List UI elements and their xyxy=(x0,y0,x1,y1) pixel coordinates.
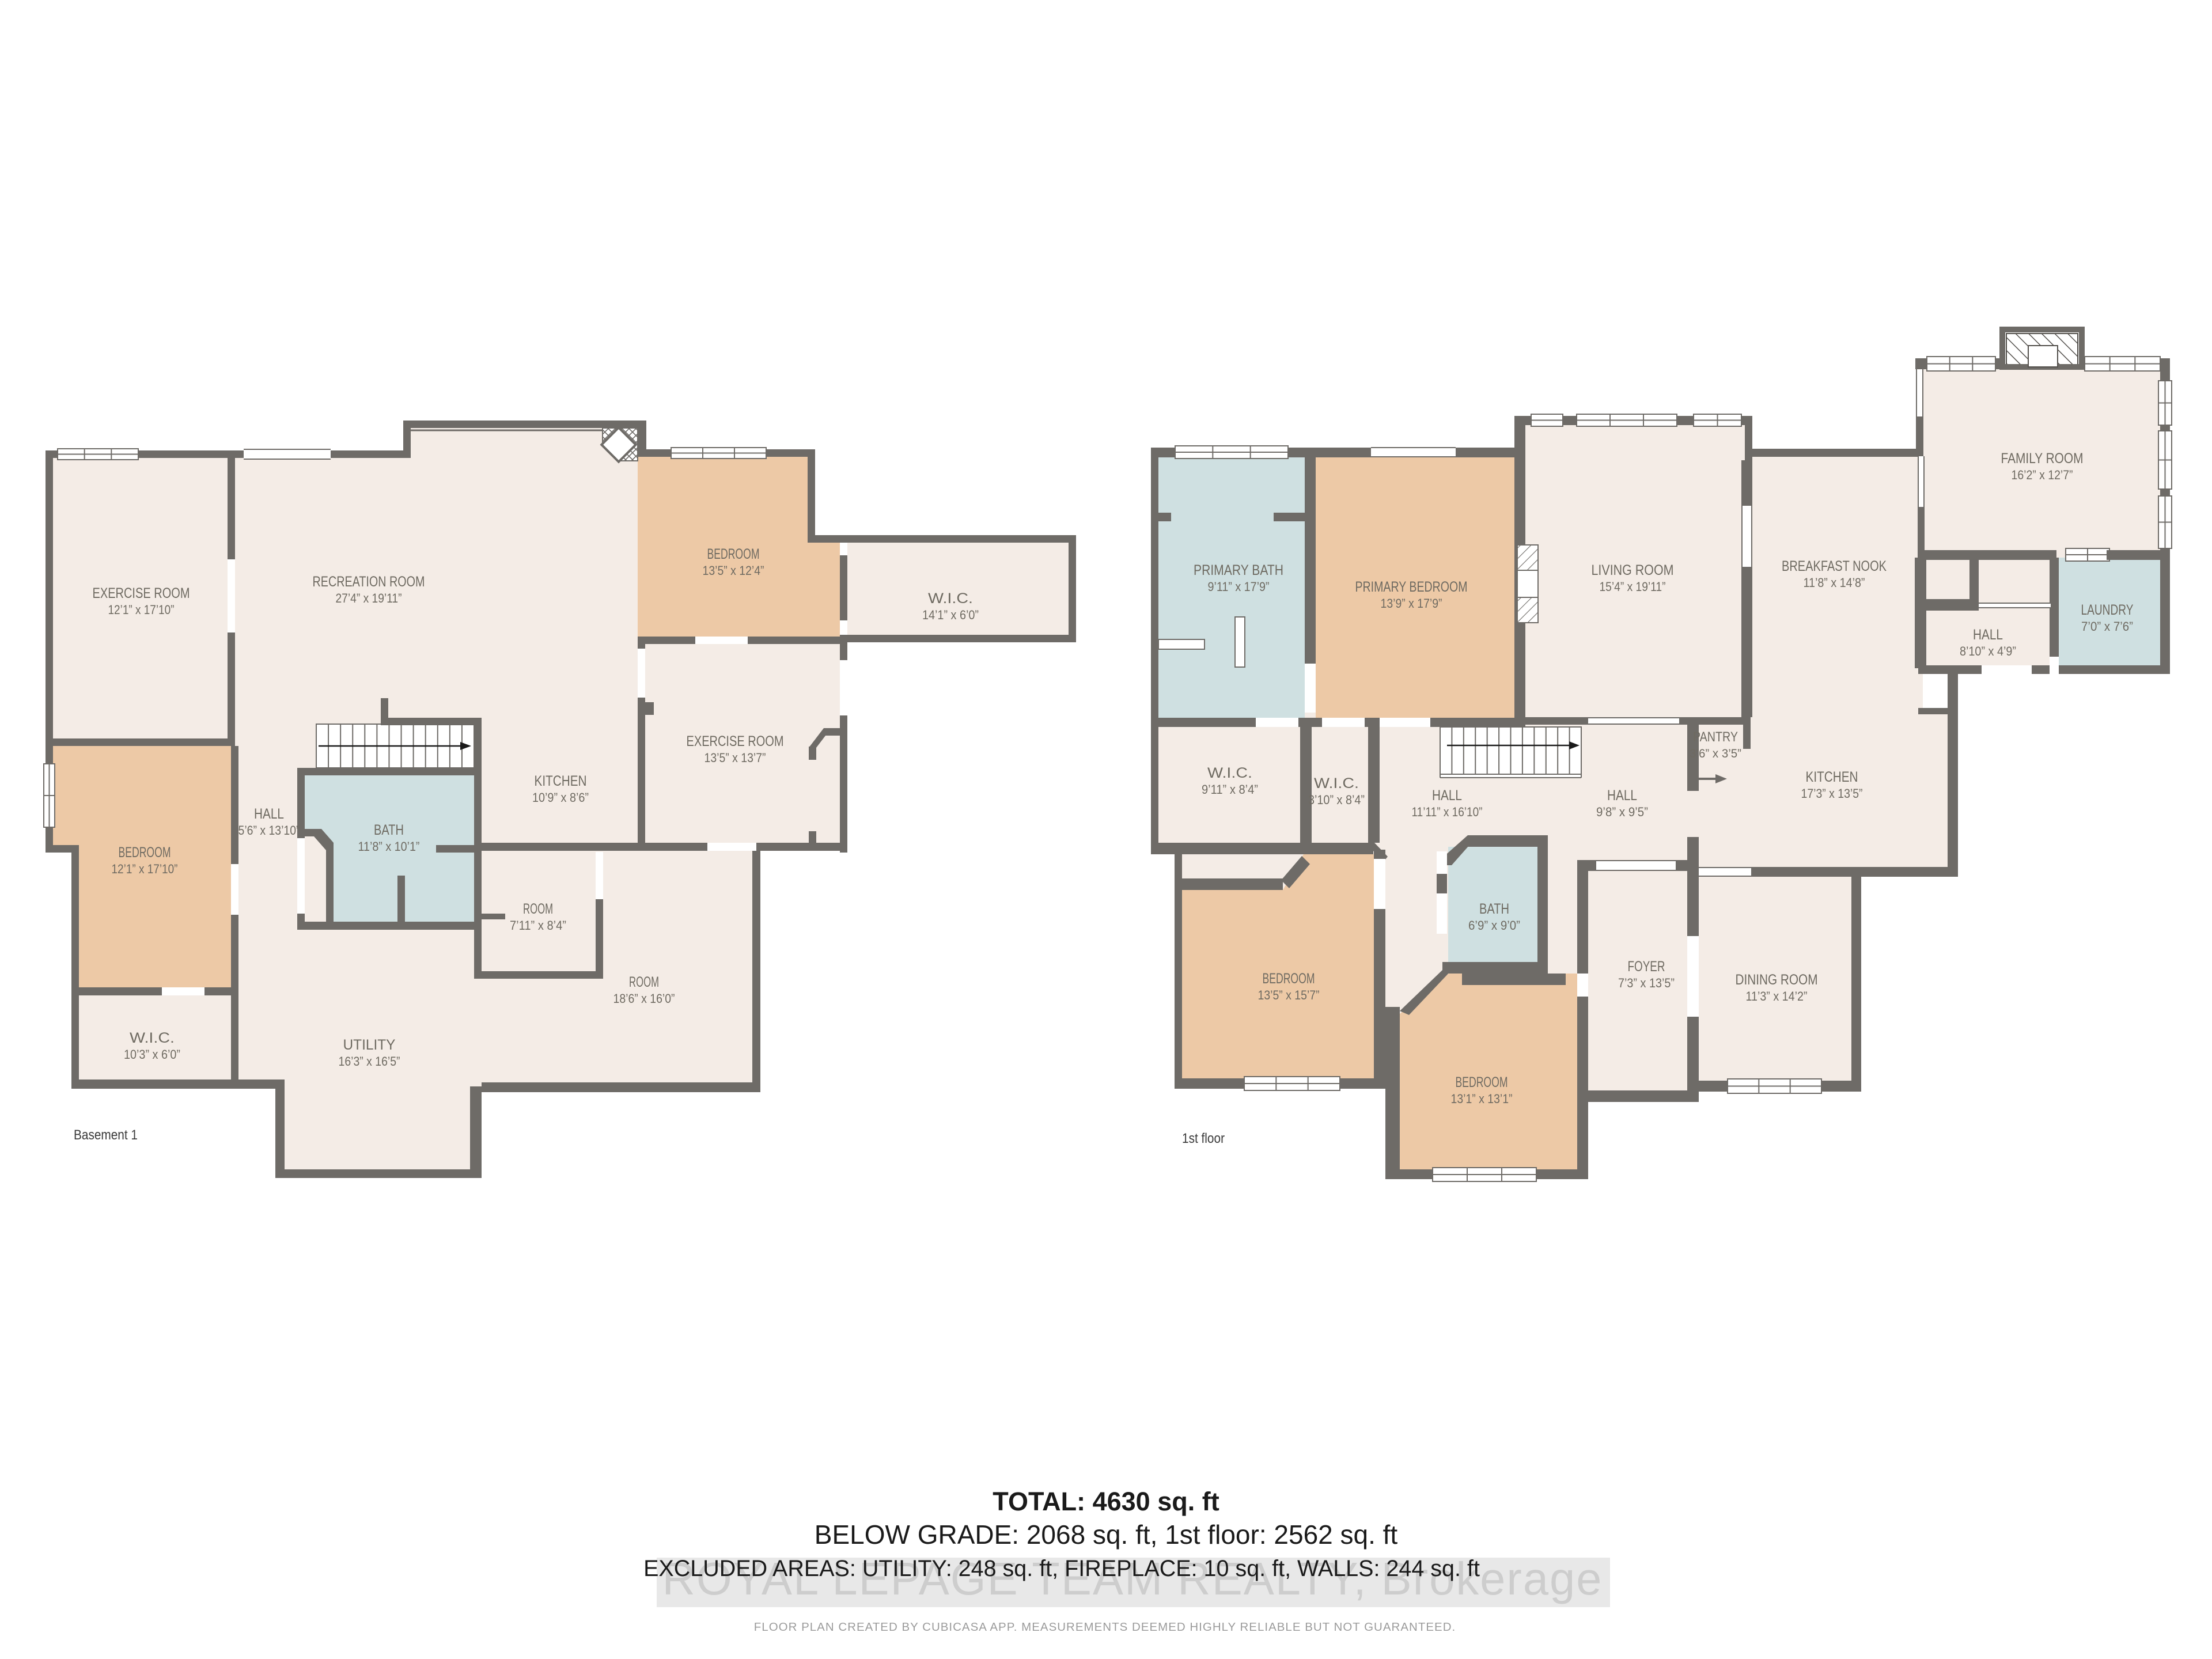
svg-text:5’6” x 13’10”: 5’6” x 13’10” xyxy=(238,823,300,838)
svg-text:BATH: BATH xyxy=(1479,901,1509,917)
svg-text:14’1” x 6’0”: 14’1” x 6’0” xyxy=(922,608,979,622)
svg-text:KITCHEN: KITCHEN xyxy=(1806,769,1858,785)
svg-text:12’1” x 17’10”: 12’1” x 17’10” xyxy=(112,862,178,876)
svg-text:3’6” x 3’5”: 3’6” x 3’5” xyxy=(1690,747,1741,760)
svg-text:11’11” x 16’10”: 11’11” x 16’10” xyxy=(1412,805,1483,819)
svg-text:LAUNDRY: LAUNDRY xyxy=(2081,602,2134,618)
svg-text:BEDROOM: BEDROOM xyxy=(119,844,171,861)
svg-text:16’2” x 12’7”: 16’2” x 12’7” xyxy=(2012,468,2073,482)
svg-text:EXCLUDED AREAS: UTILITY: 248 s: EXCLUDED AREAS: UTILITY: 248 sq. ft, FIR… xyxy=(643,1556,1480,1581)
svg-text:15’4” x 19’11”: 15’4” x 19’11” xyxy=(1600,579,1666,594)
svg-text:W.I.C.: W.I.C. xyxy=(928,590,973,607)
svg-text:BELOW GRADE: 2068 sq. ft, 1st: BELOW GRADE: 2068 sq. ft, 1st floor: 256… xyxy=(815,1520,1398,1550)
svg-text:1st floor: 1st floor xyxy=(1182,1131,1225,1146)
svg-text:10’9” x 8’6”: 10’9” x 8’6” xyxy=(532,790,589,805)
svg-text:RECREATION ROOM: RECREATION ROOM xyxy=(313,574,425,590)
svg-text:HALL: HALL xyxy=(1607,787,1637,804)
svg-text:8’10” x 4’9”: 8’10” x 4’9” xyxy=(1960,644,2016,658)
svg-text:EXERCISE ROOM: EXERCISE ROOM xyxy=(687,733,784,749)
svg-text:KITCHEN: KITCHEN xyxy=(535,773,587,789)
svg-text:BEDROOM: BEDROOM xyxy=(707,546,760,562)
svg-text:12’1” x 17’10”: 12’1” x 17’10” xyxy=(108,603,175,617)
svg-text:11’8” x 14’8”: 11’8” x 14’8” xyxy=(1804,575,1865,590)
svg-text:18’6” x 16’0”: 18’6” x 16’0” xyxy=(613,991,675,1006)
svg-text:13’1” x 13’1”: 13’1” x 13’1” xyxy=(1451,1092,1513,1106)
svg-text:W.I.C.: W.I.C. xyxy=(130,1030,175,1046)
svg-text:FLOOR PLAN CREATED BY CUBICASA: FLOOR PLAN CREATED BY CUBICASA APP. MEAS… xyxy=(754,1620,1456,1634)
svg-text:10’3” x 6’0”: 10’3” x 6’0” xyxy=(124,1047,180,1062)
svg-text:ROOM: ROOM xyxy=(523,901,553,917)
svg-text:27’4” x 19’11”: 27’4” x 19’11” xyxy=(336,591,402,605)
svg-text:7’11” x 8’4”: 7’11” x 8’4” xyxy=(510,918,566,933)
svg-text:17’3” x 13’5”: 17’3” x 13’5” xyxy=(1801,786,1863,801)
svg-text:13’9” x 17’9”: 13’9” x 17’9” xyxy=(1381,596,1442,611)
svg-text:EXERCISE ROOM: EXERCISE ROOM xyxy=(93,585,190,601)
svg-text:PRIMARY BEDROOM: PRIMARY BEDROOM xyxy=(1355,579,1468,595)
svg-text:FAMILY ROOM: FAMILY ROOM xyxy=(2001,450,2084,467)
svg-text:UTILITY: UTILITY xyxy=(343,1037,396,1053)
svg-text:9’11” x 8’4”: 9’11” x 8’4” xyxy=(1202,782,1258,797)
svg-text:7’0” x 7’6”: 7’0” x 7’6” xyxy=(2081,619,2133,634)
svg-text:LIVING ROOM: LIVING ROOM xyxy=(1592,562,1674,578)
svg-text:9’8” x 9’5”: 9’8” x 9’5” xyxy=(1596,805,1648,819)
svg-text:W.I.C.: W.I.C. xyxy=(1207,765,1252,781)
svg-text:6’9” x 9’0”: 6’9” x 9’0” xyxy=(1468,918,1520,933)
svg-text:ROOM: ROOM xyxy=(629,974,659,990)
svg-text:BREAKFAST NOOK: BREAKFAST NOOK xyxy=(1782,558,1887,574)
svg-text:HALL: HALL xyxy=(254,806,284,822)
svg-text:HALL: HALL xyxy=(1432,787,1462,804)
svg-text:FOYER: FOYER xyxy=(1628,959,1665,975)
svg-text:W.I.C.: W.I.C. xyxy=(1314,775,1359,791)
svg-text:11’8” x 10’1”: 11’8” x 10’1” xyxy=(358,839,420,854)
svg-text:BATH: BATH xyxy=(374,822,404,838)
svg-text:PRIMARY BATH: PRIMARY BATH xyxy=(1194,562,1283,578)
svg-text:13’5” x 15’7”: 13’5” x 15’7” xyxy=(1258,988,1320,1002)
svg-text:7’3” x 13’5”: 7’3” x 13’5” xyxy=(1618,976,1675,990)
svg-text:16’3” x 16’5”: 16’3” x 16’5” xyxy=(339,1054,400,1069)
svg-text:9’11” x 17’9”: 9’11” x 17’9” xyxy=(1208,579,1270,594)
svg-text:BEDROOM: BEDROOM xyxy=(1456,1074,1508,1090)
svg-text:3’10” x 8’4”: 3’10” x 8’4” xyxy=(1308,793,1365,807)
svg-text:DINING ROOM: DINING ROOM xyxy=(1736,972,1818,988)
svg-text:TOTAL: 4630 sq. ft: TOTAL: 4630 sq. ft xyxy=(993,1487,1219,1516)
svg-text:Basement 1: Basement 1 xyxy=(74,1127,138,1143)
svg-text:BEDROOM: BEDROOM xyxy=(1263,971,1315,987)
svg-text:HALL: HALL xyxy=(1973,627,2003,643)
svg-text:PANTRY: PANTRY xyxy=(1693,729,1738,745)
svg-text:13’5” x 13’7”: 13’5” x 13’7” xyxy=(704,751,766,765)
svg-text:11’3” x 14’2”: 11’3” x 14’2” xyxy=(1746,989,1808,1003)
svg-text:13’5” x 12’4”: 13’5” x 12’4” xyxy=(703,563,764,578)
